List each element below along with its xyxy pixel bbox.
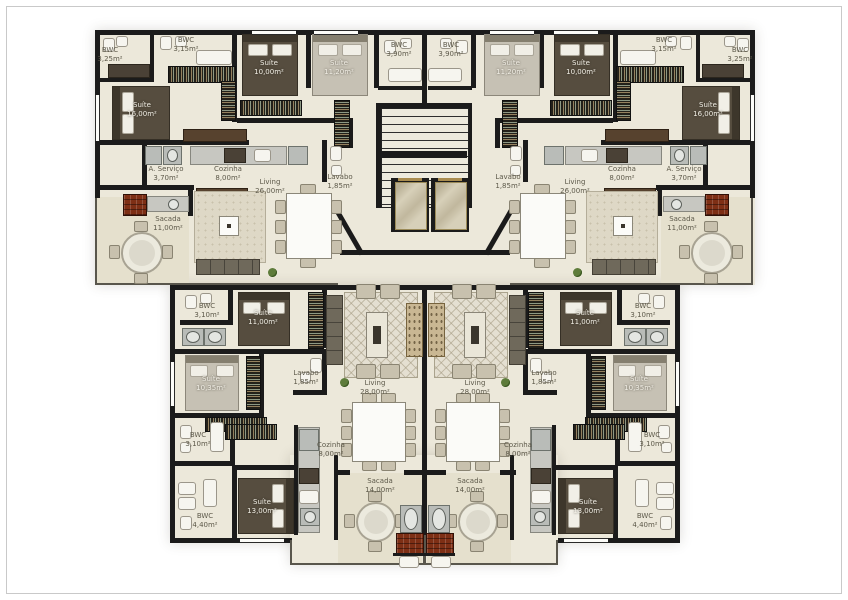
wall — [378, 86, 422, 90]
wall — [697, 78, 751, 82]
chair — [435, 426, 446, 440]
toilet — [180, 516, 192, 530]
wall — [404, 470, 424, 475]
wall — [175, 349, 327, 354]
window — [314, 30, 358, 35]
wall — [99, 78, 153, 82]
chair — [499, 426, 510, 440]
sink — [178, 482, 196, 495]
room-label-bl-bwc-c: BWC4,40m² — [192, 512, 217, 530]
room-label-tr-cozinha: Cozinha8,00m² — [608, 165, 636, 183]
wall — [232, 465, 296, 470]
room-label-bl-suite13: Suíte13,00m² — [247, 498, 277, 516]
bathtub — [428, 68, 462, 82]
shower — [702, 64, 744, 78]
elevator-1-door — [398, 178, 422, 181]
wardrobe — [308, 292, 324, 349]
dining-table — [446, 402, 500, 462]
sofa — [326, 295, 343, 365]
window — [490, 30, 534, 35]
wall — [306, 30, 311, 88]
balcony-table — [458, 502, 498, 542]
room-label-bl-living: Living28,00m² — [360, 379, 390, 397]
washer — [670, 146, 689, 165]
armchair — [356, 364, 376, 379]
wardrobe — [221, 81, 236, 121]
room-label-tr-suite10: Suíte10,00m² — [566, 59, 596, 77]
balcony-parapet — [556, 540, 558, 565]
chair — [470, 541, 484, 552]
balcony-parapet — [290, 540, 292, 565]
wardrobe — [616, 81, 631, 121]
elevator-1-cab — [395, 182, 427, 230]
refrigerator — [288, 146, 308, 165]
room-label-tr-bwc-a: BWC3,25m² — [727, 46, 752, 64]
window — [675, 362, 680, 406]
room-label-br-suite13: Suíte13,00m² — [573, 498, 603, 516]
washer — [646, 328, 668, 346]
room-label-tl-cozinha: Cozinha8,00m² — [214, 165, 242, 183]
washer — [300, 508, 320, 526]
toilet — [330, 146, 342, 161]
wall — [322, 140, 327, 182]
armchair — [476, 284, 496, 299]
armchair — [356, 284, 376, 299]
wardrobe — [573, 424, 625, 440]
stair-landing-rail — [381, 151, 467, 158]
room-label-tl-lavabo: Lavabo1,85m² — [327, 173, 352, 191]
room-label-br-suite10: Suíte10,35m² — [624, 375, 654, 393]
wall — [232, 465, 237, 538]
room-label-tl-suite16: Suíte16,00m² — [127, 101, 157, 119]
window — [750, 95, 755, 141]
dining-table — [520, 193, 566, 259]
toilet — [160, 36, 172, 50]
wardrobe — [334, 100, 350, 148]
room-label-bl-lavabo: Lavabo1,85m² — [293, 369, 318, 387]
barbecue-grill — [705, 194, 729, 216]
chair — [435, 409, 446, 423]
balcony-table — [691, 232, 733, 274]
washer — [163, 146, 182, 165]
wall — [471, 30, 476, 88]
armchair — [452, 364, 472, 379]
wall — [99, 185, 194, 190]
chair — [534, 184, 550, 194]
chair — [704, 221, 718, 232]
chair — [275, 200, 286, 214]
wall — [334, 455, 338, 540]
toilet — [510, 146, 522, 161]
barbecue-base — [431, 556, 451, 568]
window — [240, 538, 284, 543]
room-label-tr-lavabo: Lavabo1,85m² — [495, 173, 520, 191]
room-label-tr-bwc-c: BWC3,90m² — [438, 41, 463, 59]
bathtub — [388, 68, 422, 82]
laundry-tank — [145, 146, 162, 165]
balcony-counter — [663, 196, 705, 212]
window — [554, 30, 598, 35]
party-wall — [422, 30, 427, 108]
armchair — [452, 284, 472, 299]
wall — [510, 455, 514, 540]
wall — [500, 470, 516, 475]
room-label-tl-suite10: Suíte10,00m² — [254, 59, 284, 77]
chair — [341, 409, 352, 423]
chair — [381, 461, 396, 471]
wardrobe — [550, 100, 612, 116]
chair — [475, 461, 490, 471]
room-label-tl-bwc-c: BWC3,90m² — [386, 41, 411, 59]
wardrobe — [225, 424, 277, 440]
wall — [696, 30, 700, 82]
barbecue-counter — [428, 505, 450, 533]
stove — [606, 148, 628, 163]
chair — [565, 240, 576, 254]
chair — [331, 220, 342, 234]
room-label-tl-living: Living26,00m² — [255, 178, 285, 196]
room-label-tl-sacada: Sacada11,00m² — [153, 215, 183, 233]
sink — [656, 497, 674, 510]
dryer — [204, 328, 226, 346]
chair — [405, 443, 416, 457]
wardrobe — [528, 292, 544, 349]
room-label-tl-servico: A. Serviço3,70m² — [149, 165, 184, 183]
wall — [523, 390, 557, 395]
plant — [573, 268, 582, 277]
chair — [497, 514, 508, 528]
balcony-parapet — [290, 563, 558, 565]
wall — [523, 349, 675, 354]
chair — [509, 200, 520, 214]
stove — [224, 148, 246, 163]
dining-table — [286, 193, 332, 259]
balcony-sink — [671, 199, 682, 210]
wardrobe — [502, 100, 518, 148]
balcony-table — [356, 502, 396, 542]
shower — [108, 64, 150, 78]
wall — [656, 185, 751, 190]
bathtub — [203, 479, 217, 507]
chair — [499, 409, 510, 423]
room-label-br-suite11: Suíte11,00m² — [570, 309, 600, 327]
chair — [565, 220, 576, 234]
wall — [618, 320, 670, 325]
chair — [162, 245, 173, 259]
dryer — [624, 328, 646, 346]
room-label-bl-sacada: Sacada14,00m² — [365, 477, 395, 495]
wall — [334, 470, 350, 475]
laundry-tank — [690, 146, 707, 165]
sideboard — [605, 129, 669, 142]
chair — [704, 273, 718, 284]
wall — [293, 390, 327, 395]
wall — [426, 470, 446, 475]
bathtub — [196, 50, 232, 65]
toilet — [680, 36, 692, 50]
armchair — [476, 364, 496, 379]
chair — [405, 409, 416, 423]
room-label-tl-suite11: Suíte11,20m² — [324, 59, 354, 77]
sink — [656, 482, 674, 495]
chair — [275, 240, 286, 254]
toilet — [660, 516, 672, 530]
chair — [565, 200, 576, 214]
room-label-tr-suite16: Suíte16,00m² — [693, 101, 723, 119]
console-table — [406, 303, 423, 357]
chair — [732, 245, 743, 259]
chair — [134, 221, 148, 232]
chair — [456, 461, 471, 471]
console-table — [428, 303, 445, 357]
wall — [523, 140, 528, 182]
room-label-br-bwc-a: BWC3,10m² — [630, 302, 655, 320]
chair — [435, 443, 446, 457]
chair — [344, 514, 355, 528]
chair — [300, 258, 316, 268]
barbecue-counter — [400, 505, 422, 533]
wall — [495, 118, 500, 148]
chair — [134, 273, 148, 284]
sofa — [196, 259, 260, 275]
sink — [178, 497, 196, 510]
washer — [182, 328, 204, 346]
window — [252, 30, 296, 35]
wall — [554, 465, 618, 470]
chair — [368, 541, 382, 552]
chair — [109, 245, 120, 259]
sideboard — [183, 129, 247, 142]
plant — [501, 378, 510, 387]
bathtub — [210, 422, 224, 452]
room-label-tr-bwc-b: BWC3,15m² — [651, 36, 676, 54]
wall — [675, 285, 680, 543]
chair — [534, 258, 550, 268]
washer — [530, 508, 550, 526]
window — [564, 538, 608, 543]
refrigerator — [544, 146, 564, 165]
room-label-bl-suite11: Suíte11,00m² — [248, 309, 278, 327]
wall — [552, 425, 556, 535]
barbecue-base — [399, 556, 419, 568]
wall — [428, 86, 472, 90]
balcony-parapet — [95, 198, 97, 285]
balcony-table — [121, 232, 163, 274]
room-label-tr-sacada: Sacada11,00m² — [667, 215, 697, 233]
room-label-tl-bwc-b: BWC3,15m² — [173, 36, 198, 54]
balcony-parapet — [751, 198, 753, 285]
room-label-br-living: Living28,00m² — [460, 379, 490, 397]
room-label-br-bwc-b: BWC3,10m² — [639, 431, 664, 449]
sofa — [592, 259, 656, 275]
refrigerator — [531, 429, 551, 451]
wall — [615, 461, 675, 466]
window — [170, 362, 175, 406]
room-label-bl-cozinha: Cozinha8,00m² — [317, 441, 345, 459]
chair — [331, 240, 342, 254]
chair — [405, 426, 416, 440]
fireplace-tv-panel — [366, 312, 388, 358]
kitchen-sink — [581, 149, 598, 162]
room-label-br-bwc-c: BWC4,40m² — [632, 512, 657, 530]
room-label-br-sacada: Sacada14,00m² — [455, 477, 485, 495]
kitchen-sink — [254, 149, 271, 162]
window — [95, 95, 100, 141]
coffee-table — [613, 216, 633, 236]
plant — [340, 378, 349, 387]
balcony-sink — [168, 199, 179, 210]
plant — [268, 268, 277, 277]
barbecue-grill — [396, 533, 424, 555]
room-label-bl-bwc-a: BWC3,10m² — [194, 302, 219, 320]
chair — [341, 426, 352, 440]
floor-plan: BWC3,25m² BWC3,15m² Suíte16,00m² Suíte10… — [0, 0, 848, 600]
stove — [531, 468, 551, 484]
fireplace-tv-panel — [464, 312, 486, 358]
chair — [331, 200, 342, 214]
armchair — [380, 364, 400, 379]
wall — [180, 320, 232, 325]
elevator-2-door — [438, 178, 462, 181]
wall — [175, 461, 235, 466]
kitchen-sink — [299, 490, 319, 504]
refrigerator — [299, 429, 319, 451]
room-label-br-lavabo: Lavabo1,85m² — [531, 369, 556, 387]
chair — [300, 184, 316, 194]
wall — [617, 290, 622, 325]
chair — [509, 240, 520, 254]
kitchen-sink — [531, 490, 551, 504]
wall — [374, 30, 379, 88]
elevator-2-cab — [435, 182, 467, 230]
bathtub — [635, 479, 649, 507]
room-label-tr-servico: A. Serviço3,70m² — [667, 165, 702, 183]
wall — [150, 30, 154, 82]
barbecue-grill — [426, 533, 454, 555]
stove — [299, 468, 319, 484]
room-label-tr-suite11: Suíte11,20m² — [496, 59, 526, 77]
room-label-bl-suite10: Suíte10,35m² — [196, 375, 226, 393]
coffee-table — [219, 216, 239, 236]
barbecue-grill — [123, 194, 147, 216]
room-label-tr-living: Living26,00m² — [560, 178, 590, 196]
room-label-bl-bwc-b: BWC3,10m² — [185, 431, 210, 449]
dining-table — [352, 402, 406, 462]
room-label-br-cozinha: Cozinha8,00m² — [504, 441, 532, 459]
wall — [228, 290, 233, 325]
chair — [275, 220, 286, 234]
chair — [679, 245, 690, 259]
wardrobe — [246, 356, 261, 410]
chair — [509, 220, 520, 234]
chair — [362, 461, 377, 471]
sofa — [509, 295, 526, 365]
wardrobe — [591, 356, 606, 410]
wardrobe — [240, 100, 302, 116]
armchair — [380, 284, 400, 299]
room-label-tl-bwc-a: BWC3,25m² — [97, 46, 122, 64]
